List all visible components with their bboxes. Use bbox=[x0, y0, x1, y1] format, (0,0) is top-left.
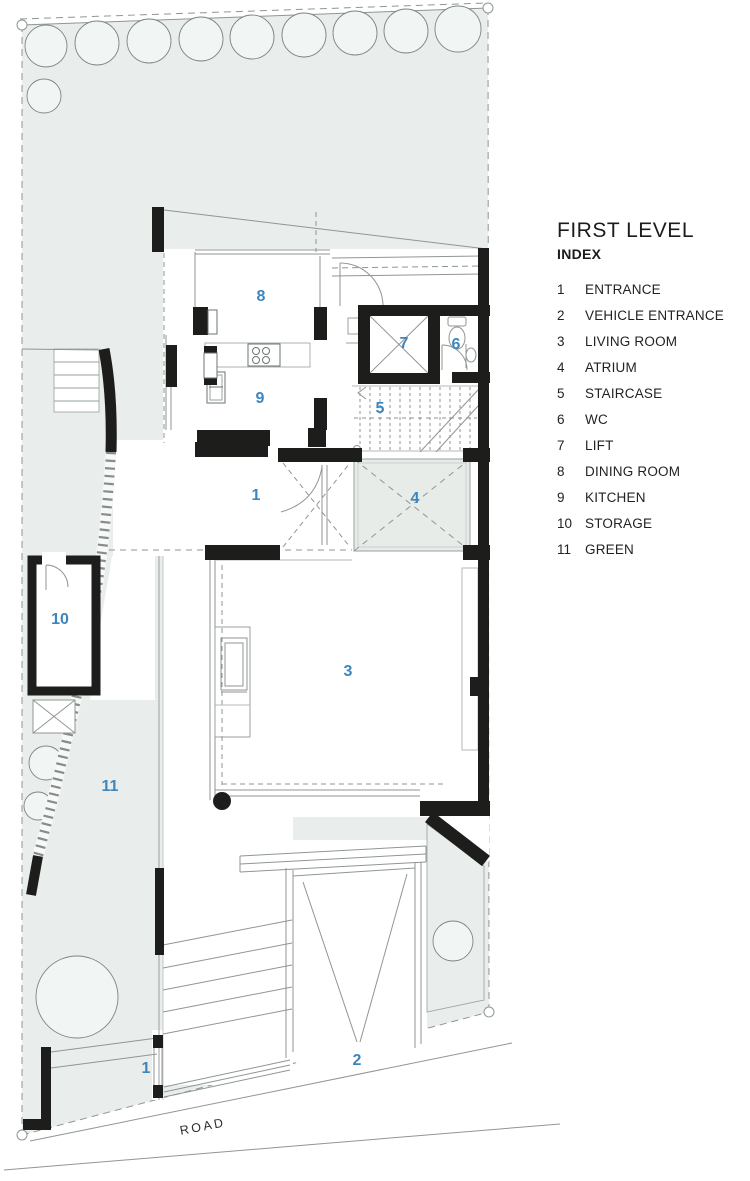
index-item-number: 11 bbox=[557, 542, 585, 557]
column bbox=[213, 792, 231, 810]
index-item-label: KITCHEN bbox=[585, 490, 646, 505]
legend-subtitle: INDEX bbox=[557, 246, 747, 262]
index-item-number: 8 bbox=[557, 464, 585, 479]
tree-icon bbox=[230, 15, 274, 59]
page-title: FIRST LEVEL bbox=[557, 219, 747, 243]
tree-icon bbox=[25, 25, 67, 67]
room-label-living-room: 3 bbox=[344, 664, 353, 680]
index-item-label: ENTRANCE bbox=[585, 282, 661, 297]
room-label-entrance-gate: 1 bbox=[142, 1061, 151, 1077]
index-item-number: 1 bbox=[557, 282, 585, 297]
tree-icon bbox=[27, 79, 61, 113]
room-label-wc: 6 bbox=[452, 337, 461, 353]
room-label-lift: 7 bbox=[400, 336, 409, 352]
index-item-10: 10STORAGE bbox=[557, 516, 747, 542]
tree-icon bbox=[282, 13, 326, 57]
index-item-number: 3 bbox=[557, 334, 585, 349]
tree-icon bbox=[435, 6, 481, 52]
index-item-5: 5STAIRCASE bbox=[557, 386, 747, 412]
room-label-entrance: 1 bbox=[252, 488, 261, 504]
tree-icon bbox=[36, 956, 118, 1038]
index-item-number: 9 bbox=[557, 490, 585, 505]
room-label-kitchen: 9 bbox=[256, 391, 265, 407]
index-item-label: LIFT bbox=[585, 438, 614, 453]
index-item-label: VEHICLE ENTRANCE bbox=[585, 308, 724, 323]
tree-icon bbox=[384, 9, 428, 53]
index-item-label: LIVING ROOM bbox=[585, 334, 677, 349]
tree-icon bbox=[75, 21, 119, 65]
room-label-storage: 10 bbox=[51, 612, 69, 628]
index-item-11: 11GREEN bbox=[557, 542, 747, 568]
index-item-3: 3LIVING ROOM bbox=[557, 334, 747, 360]
index-item-label: STORAGE bbox=[585, 516, 652, 531]
tree-icon bbox=[179, 17, 223, 61]
index-list: 1ENTRANCE2VEHICLE ENTRANCE3LIVING ROOM4A… bbox=[557, 282, 747, 568]
index-item-label: STAIRCASE bbox=[585, 386, 662, 401]
index-item-6: 6WC bbox=[557, 412, 747, 438]
tree-icon bbox=[433, 921, 473, 961]
shaft-box bbox=[33, 700, 75, 733]
index-item-label: WC bbox=[585, 412, 608, 427]
floor-plan-page: FIRST LEVEL INDEX 1ENTRANCE2VEHICLE ENTR… bbox=[0, 0, 750, 1181]
index-item-number: 10 bbox=[557, 516, 585, 531]
room-label-vehicle-entrance: 2 bbox=[353, 1053, 362, 1069]
index-item-2: 2VEHICLE ENTRANCE bbox=[557, 308, 747, 334]
index-item-7: 7LIFT bbox=[557, 438, 747, 464]
index-item-4: 4ATRIUM bbox=[557, 360, 747, 386]
floor-plan-drawing bbox=[0, 0, 750, 1181]
index-item-label: ATRIUM bbox=[585, 360, 637, 375]
index-item-8: 8DINING ROOM bbox=[557, 464, 747, 490]
index-item-number: 2 bbox=[557, 308, 585, 323]
tree-icon bbox=[127, 19, 171, 63]
index-item-label: DINING ROOM bbox=[585, 464, 680, 479]
index-item-number: 6 bbox=[557, 412, 585, 427]
legend-panel: FIRST LEVEL INDEX 1ENTRANCE2VEHICLE ENTR… bbox=[557, 219, 747, 568]
room-label-atrium: 4 bbox=[411, 491, 420, 507]
index-item-number: 7 bbox=[557, 438, 585, 453]
room-label-dining-room: 8 bbox=[257, 289, 266, 305]
index-item-9: 9KITCHEN bbox=[557, 490, 747, 516]
index-item-number: 5 bbox=[557, 386, 585, 401]
room-label-staircase: 5 bbox=[376, 401, 385, 417]
tree-icon bbox=[333, 11, 377, 55]
index-item-number: 4 bbox=[557, 360, 585, 375]
index-item-label: GREEN bbox=[585, 542, 634, 557]
index-item-1: 1ENTRANCE bbox=[557, 282, 747, 308]
room-label-green: 11 bbox=[102, 779, 119, 795]
